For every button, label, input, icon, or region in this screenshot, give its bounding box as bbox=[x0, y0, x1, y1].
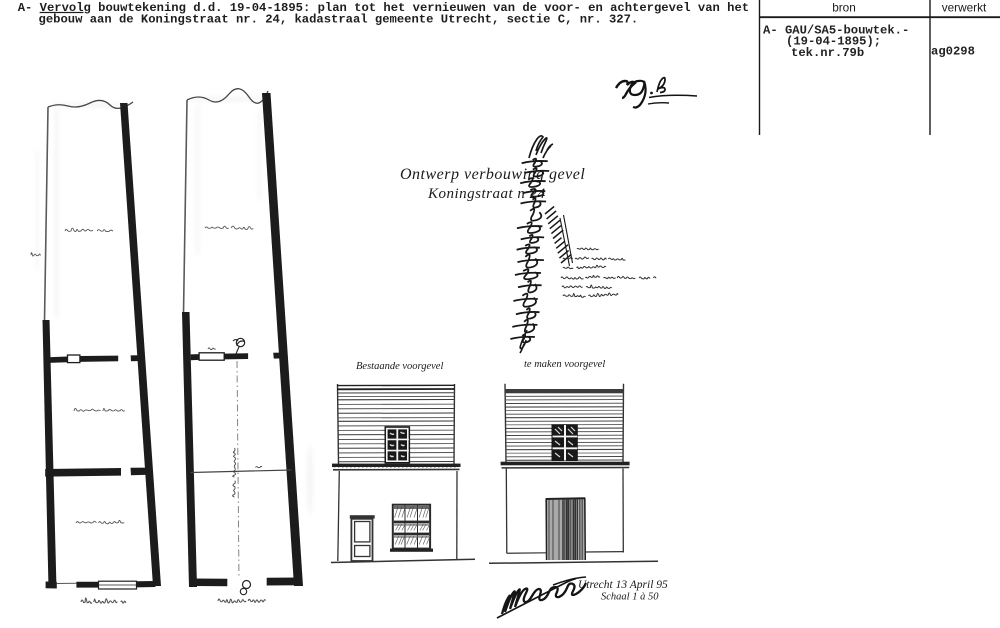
svg-text:Koningstraat n 24: Koningstraat n 24 bbox=[427, 186, 546, 202]
svg-text:Schaal 1 à 50: Schaal 1 à 50 bbox=[601, 592, 659, 603]
svg-text:bron: bron bbox=[832, 0, 856, 14]
svg-text:verwerkt: verwerkt bbox=[942, 0, 987, 14]
svg-text:te maken voorgevel: te maken voorgevel bbox=[524, 359, 605, 370]
svg-text:Ontwerp verbouwing gevel: Ontwerp verbouwing gevel bbox=[400, 166, 585, 183]
svg-text:gebouw aan de Koningstraat nr.: gebouw aan de Koningstraat nr. 24, kadas… bbox=[39, 12, 639, 26]
svg-text:Utrecht 13 April 95: Utrecht 13 April 95 bbox=[578, 579, 668, 591]
svg-text:tek.nr.79b: tek.nr.79b bbox=[791, 46, 864, 60]
svg-text:ag0298: ag0298 bbox=[931, 45, 975, 59]
svg-text:Bestaande voorgevel: Bestaande voorgevel bbox=[356, 361, 443, 372]
